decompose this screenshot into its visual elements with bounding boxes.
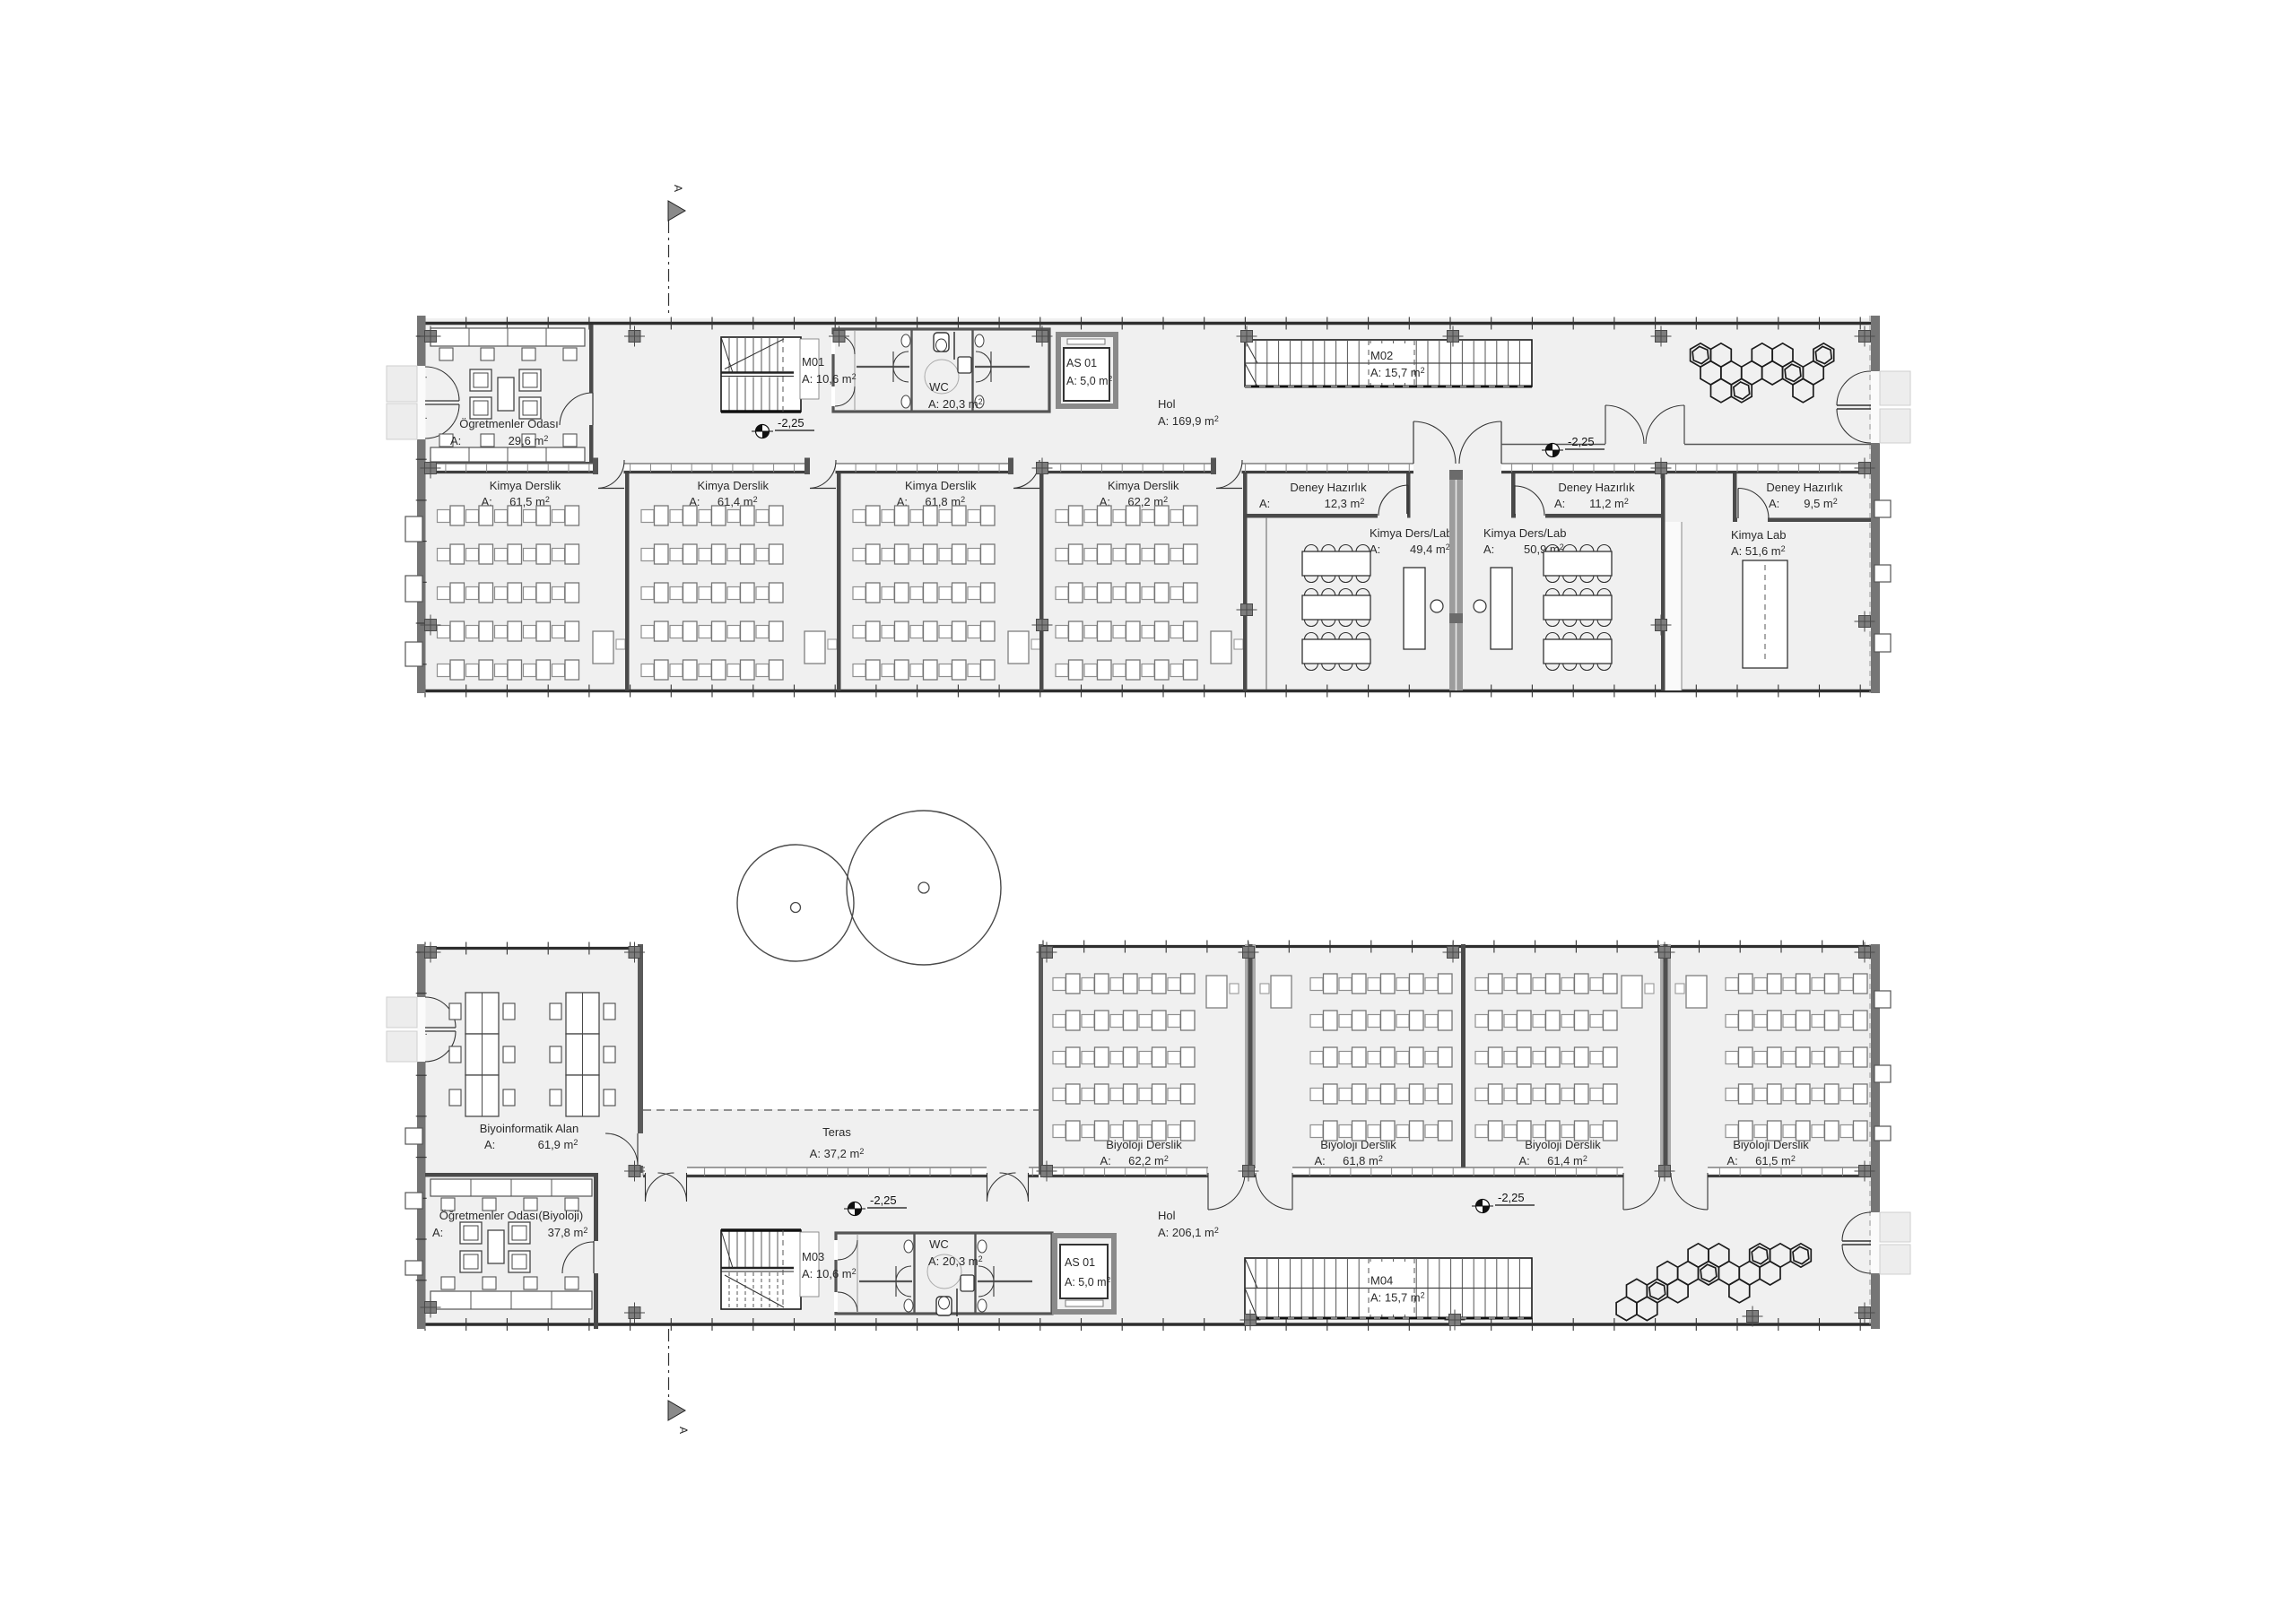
svg-text:62,2 m2: 62,2 m2 xyxy=(1128,1154,1169,1167)
svg-text:A:: A: xyxy=(1100,1154,1111,1167)
svg-text:Kimya Lab: Kimya Lab xyxy=(1731,528,1786,542)
svg-text:A: A xyxy=(672,185,684,192)
svg-text:A:: A: xyxy=(432,1226,443,1239)
svg-text:AS 01: AS 01 xyxy=(1066,357,1097,369)
svg-text:Deney Hazırlık: Deney Hazırlık xyxy=(1558,481,1635,494)
svg-text:9,5 m2: 9,5 m2 xyxy=(1804,497,1838,510)
svg-text:WC: WC xyxy=(929,1237,949,1251)
svg-text:Kimya Ders/Lab: Kimya Ders/Lab xyxy=(1483,526,1566,540)
svg-text:M02: M02 xyxy=(1370,349,1393,362)
svg-text:M04: M04 xyxy=(1370,1274,1393,1288)
svg-text:29,6 m2: 29,6 m2 xyxy=(509,434,549,447)
svg-text:A: 51,6 m2: A: 51,6 m2 xyxy=(1731,544,1786,558)
svg-text:Öğretmenler Odası(Biyoloji): Öğretmenler Odası(Biyoloji) xyxy=(439,1209,583,1222)
svg-text:Hol: Hol xyxy=(1158,1209,1176,1222)
svg-text:A: 10,6 m2: A: 10,6 m2 xyxy=(802,372,857,386)
svg-text:A: 15,7 m2: A: 15,7 m2 xyxy=(1370,366,1425,379)
svg-text:M01: M01 xyxy=(802,355,824,369)
svg-text:A:: A: xyxy=(1259,497,1270,510)
svg-text:A:: A: xyxy=(484,1138,495,1151)
svg-text:-2,25: -2,25 xyxy=(778,416,804,430)
svg-text:Kimya Derslik: Kimya Derslik xyxy=(490,479,561,492)
svg-text:A:: A: xyxy=(1483,542,1494,556)
svg-text:61,8 m2: 61,8 m2 xyxy=(1343,1154,1383,1167)
svg-text:61,5 m2: 61,5 m2 xyxy=(1755,1154,1796,1167)
svg-text:A:: A: xyxy=(450,434,461,447)
svg-text:37,8 m2: 37,8 m2 xyxy=(548,1226,588,1239)
svg-text:WC: WC xyxy=(929,380,949,394)
svg-text:A: 20,3 m2: A: 20,3 m2 xyxy=(928,397,983,411)
svg-text:Deney Hazırlık: Deney Hazırlık xyxy=(1290,481,1367,494)
svg-text:AS 01: AS 01 xyxy=(1065,1256,1095,1269)
svg-text:Biyoloji Derslik: Biyoloji Derslik xyxy=(1106,1138,1182,1151)
svg-text:Hol: Hol xyxy=(1158,397,1176,411)
svg-text:61,9 m2: 61,9 m2 xyxy=(538,1138,578,1151)
svg-text:Deney Hazırlık: Deney Hazırlık xyxy=(1766,481,1843,494)
svg-text:12,3 m2: 12,3 m2 xyxy=(1325,497,1365,510)
svg-text:A:: A: xyxy=(1554,497,1565,510)
svg-text:Biyoinformatik Alan: Biyoinformatik Alan xyxy=(480,1122,579,1135)
svg-text:-2,25: -2,25 xyxy=(1568,435,1595,448)
svg-text:A:: A: xyxy=(1315,1154,1326,1167)
svg-text:A: 10,6 m2: A: 10,6 m2 xyxy=(802,1267,857,1280)
svg-text:A: 5,0 m2: A: 5,0 m2 xyxy=(1065,1275,1111,1289)
svg-text:Kimya Derslik: Kimya Derslik xyxy=(698,479,770,492)
svg-text:A:: A: xyxy=(1769,497,1779,510)
svg-text:A: 15,7 m2: A: 15,7 m2 xyxy=(1370,1291,1425,1305)
svg-text:A: 20,3 m2: A: 20,3 m2 xyxy=(928,1254,983,1268)
svg-text:A:: A: xyxy=(1519,1154,1530,1167)
svg-text:61,4 m2: 61,4 m2 xyxy=(1547,1154,1587,1167)
svg-text:49,4 m2: 49,4 m2 xyxy=(1410,542,1450,556)
svg-text:A: 169,9 m2: A: 169,9 m2 xyxy=(1158,414,1219,428)
svg-text:A: 5,0 m2: A: 5,0 m2 xyxy=(1066,374,1113,387)
svg-text:Teras: Teras xyxy=(822,1125,851,1139)
svg-text:A:: A: xyxy=(1727,1154,1738,1167)
svg-text:M03: M03 xyxy=(802,1250,824,1263)
svg-text:A:: A: xyxy=(1370,542,1380,556)
svg-text:-2,25: -2,25 xyxy=(870,1193,897,1207)
svg-text:Biyoloji Derslik: Biyoloji Derslik xyxy=(1525,1138,1601,1151)
svg-text:A: A xyxy=(677,1427,690,1434)
svg-text:A: 37,2 m2: A: 37,2 m2 xyxy=(810,1147,865,1160)
svg-text:A: 206,1 m2: A: 206,1 m2 xyxy=(1158,1226,1219,1239)
svg-text:Kimya Derslik: Kimya Derslik xyxy=(1108,479,1179,492)
svg-text:Kimya Derslik: Kimya Derslik xyxy=(905,479,977,492)
svg-text:Kimya Ders/Lab: Kimya Ders/Lab xyxy=(1370,526,1452,540)
svg-text:11,2 m2: 11,2 m2 xyxy=(1589,497,1629,510)
svg-text:-2,25: -2,25 xyxy=(1498,1191,1525,1204)
svg-text:Ögretmenler Odası: Ögretmenler Odası xyxy=(459,417,559,430)
